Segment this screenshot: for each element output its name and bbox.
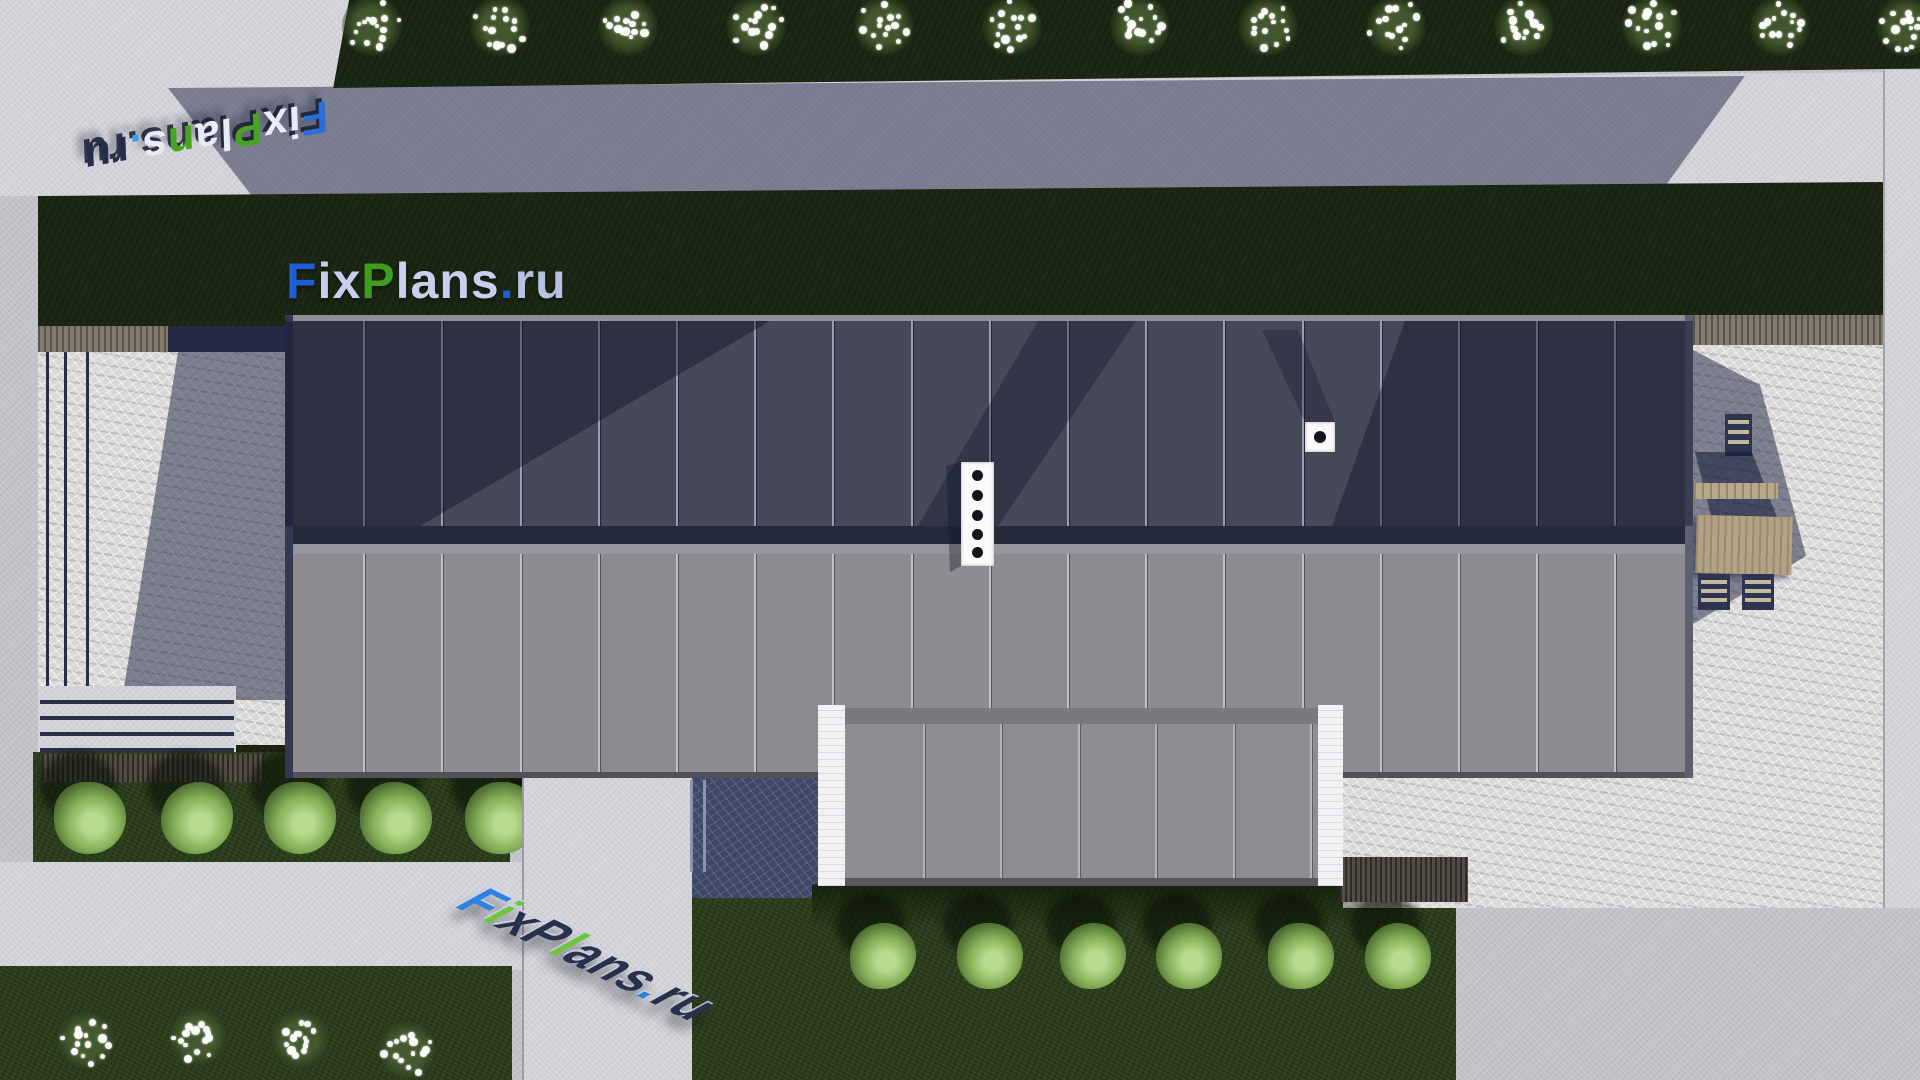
flower-cluster: [168, 1007, 228, 1067]
flower-dot: [380, 27, 386, 33]
patio-chair-top: [1725, 414, 1752, 456]
bush: [1268, 923, 1334, 989]
flower-dot: [1905, 16, 1914, 25]
flower-dot: [1650, 0, 1657, 7]
roof-panel-seam: [441, 321, 444, 526]
garage-panel-seam: [923, 724, 926, 878]
watermark-letter: l: [396, 252, 411, 310]
flower-dot: [631, 29, 637, 35]
vent-hole: [972, 470, 983, 481]
flower-dot: [1413, 13, 1420, 20]
flower-dot: [1776, 1, 1782, 7]
site-plan-render: FixPlans.ru FixPlans.ru FixPlans.ru: [0, 0, 1920, 1080]
watermark-letter: n: [166, 113, 195, 168]
flower-dot: [1655, 22, 1663, 30]
flower-dot: [1127, 28, 1132, 33]
vent-hole: [972, 547, 983, 558]
flower-dot: [84, 1033, 89, 1038]
flower-dot: [765, 31, 773, 39]
patio-chair-bottom-left: [1698, 574, 1730, 610]
flower-dot: [1016, 35, 1023, 42]
flower-dot: [877, 23, 882, 28]
flower-dot: [182, 1030, 190, 1038]
flower-dot: [1643, 42, 1651, 50]
flower-dot: [629, 21, 636, 28]
roof-panel-seam: [1067, 321, 1070, 526]
roof-panel-seam: [676, 321, 679, 526]
watermark-letter: r: [110, 125, 130, 179]
watermark-letter: u: [535, 252, 567, 310]
flower-dot: [1909, 26, 1913, 30]
flower-dot: [754, 11, 762, 19]
garage-roof-bottom-edge: [845, 878, 1318, 886]
watermark-letter: P: [361, 252, 395, 310]
roof-panel-seam: [1614, 554, 1617, 772]
watermark-letter: u: [83, 128, 112, 183]
watermark-letter: .: [500, 252, 515, 310]
watermark-letter: i: [318, 252, 333, 310]
garage-roof: [845, 724, 1318, 878]
roof-panel-seam: [1223, 321, 1226, 526]
watermark-letter: a: [411, 252, 440, 310]
watermark-letter: r: [515, 252, 535, 310]
flower-dot: [88, 1061, 94, 1067]
flower-dot: [1788, 33, 1793, 38]
flower-dot: [1262, 28, 1268, 34]
flower-dot: [1001, 35, 1010, 44]
flower-dot: [400, 1035, 407, 1042]
flower-dot: [1776, 31, 1783, 38]
watermark-letter: x: [262, 97, 289, 152]
vent-hole: [972, 529, 983, 540]
garage-panel-seam: [1000, 724, 1003, 878]
flower-dot: [60, 1036, 64, 1040]
pergola-beam: [46, 352, 49, 742]
flower-dot: [376, 43, 384, 51]
roof-panel-seam: [598, 321, 601, 526]
flower-dot: [761, 4, 768, 11]
flower-dot: [1148, 4, 1153, 9]
roof-panel-seam: [441, 554, 444, 772]
flower-dot: [375, 24, 379, 28]
flower-dot: [191, 1026, 200, 1035]
flower-dot: [779, 17, 784, 22]
flower-dot: [631, 11, 639, 19]
flower-dot: [303, 1036, 307, 1040]
flower-dot: [287, 1046, 296, 1055]
watermark-letter: a: [194, 109, 221, 164]
flower-dot: [1914, 24, 1920, 31]
flower-dot: [415, 1069, 422, 1076]
roof-right-edge: [1685, 315, 1693, 778]
watermark-letter: x: [332, 252, 361, 310]
vent-hole: [972, 490, 983, 501]
flower-dot: [1671, 10, 1677, 16]
flower-dot: [1797, 19, 1805, 27]
bush: [264, 782, 336, 854]
roof-panel-seam: [363, 554, 366, 772]
bush: [1156, 923, 1222, 989]
flower-cluster: [270, 1009, 330, 1069]
side-court-shadowed: [692, 778, 818, 898]
flower-dot: [1402, 37, 1408, 43]
flower-dot: [1883, 38, 1889, 44]
roof-panel-seam: [520, 321, 523, 526]
step-line: [40, 700, 234, 704]
left-patio-wall: [38, 326, 168, 352]
roof-panel-seam: [1145, 321, 1148, 526]
flower-dot: [1790, 20, 1794, 24]
flower-dot: [1518, 1, 1523, 6]
step-line: [40, 716, 234, 720]
roof-panel-seam: [911, 321, 914, 526]
flower-dot: [1891, 25, 1900, 34]
flower-dot: [885, 25, 891, 31]
watermark-letter: s: [141, 118, 168, 173]
flower-dot: [98, 1034, 107, 1043]
flower-dot: [1510, 25, 1514, 29]
flower-dot: [1890, 11, 1896, 17]
flower-dot: [1895, 46, 1901, 52]
flower-dot: [511, 26, 517, 32]
watermark-letter: F: [286, 252, 318, 310]
flower-dot: [362, 20, 367, 25]
roof-panel-seam: [1536, 554, 1539, 772]
roof-panel-seam: [520, 554, 523, 772]
roof-vent-strip: [961, 462, 994, 566]
flower-dot: [994, 42, 1000, 48]
roof-panel-seam: [1380, 321, 1383, 526]
flower-dot: [998, 10, 1005, 17]
side-court-step-line: [690, 780, 693, 872]
flower-dot: [207, 1053, 211, 1057]
bush: [54, 782, 126, 854]
flower-dot: [753, 28, 760, 35]
flower-dot: [488, 27, 495, 34]
bottom-right-pavement: [1456, 908, 1920, 1080]
flower-dot: [493, 7, 497, 11]
flower-dot: [1534, 33, 1540, 39]
flower-dot: [614, 16, 620, 22]
flower-dot: [1252, 26, 1257, 31]
flower-dot: [311, 1028, 316, 1033]
flower-dot: [519, 36, 526, 43]
flower-dot: [1284, 28, 1289, 33]
bush: [1365, 923, 1431, 989]
flower-dot: [768, 23, 776, 31]
watermark-letter: n: [439, 252, 471, 310]
flower-dot: [1274, 42, 1279, 47]
flower-dot: [1501, 37, 1506, 42]
garage-panel-seam: [1310, 724, 1313, 878]
roof-panel-seam: [676, 554, 679, 772]
flower-dot: [205, 1030, 211, 1036]
flower-dot: [1124, 0, 1132, 8]
flower-dot: [990, 17, 994, 21]
garage-panel-seam: [1233, 724, 1236, 878]
flower-dot: [387, 1041, 393, 1047]
garage-east-wall: [1318, 705, 1343, 886]
watermark-letter: .: [128, 123, 143, 176]
roof-panel-seam: [598, 554, 601, 772]
flower-dot: [512, 18, 518, 24]
flower-dot: [1797, 27, 1802, 32]
flower-dot: [620, 30, 625, 35]
flower-dot: [1628, 6, 1636, 14]
flower-dot: [394, 1039, 399, 1044]
garage-roof-top-band: [845, 708, 1318, 724]
flower-dot: [1529, 17, 1534, 22]
flower-dot: [626, 19, 630, 23]
roof-panel-seam: [1614, 321, 1617, 526]
watermark-letter: F: [300, 90, 329, 145]
flower-dot: [304, 1021, 310, 1027]
flower-dot: [887, 14, 894, 21]
watermark-letter: s: [471, 252, 500, 310]
flower-cluster: [56, 1010, 116, 1070]
pergola-beam: [64, 352, 67, 742]
flower-dot: [1790, 13, 1795, 18]
garage-west-wall: [818, 705, 845, 886]
garage-panel-seam: [1078, 724, 1081, 878]
patio-bench: [1694, 483, 1778, 499]
flower-dot: [1139, 17, 1143, 21]
flower-dot: [75, 1041, 80, 1046]
watermark-letter: i: [287, 95, 302, 148]
side-court-step-line2: [703, 780, 706, 872]
patio-chair-bottom-right: [1742, 574, 1774, 610]
watermark-letter: l: [219, 107, 234, 160]
roof-panel-seam: [832, 321, 835, 526]
flower-dot: [1507, 9, 1513, 15]
flower-dot: [1879, 18, 1885, 24]
roof-panel-seam: [1380, 554, 1383, 772]
east-fence: [1693, 315, 1883, 345]
bush: [957, 923, 1023, 989]
roof-panel-seam: [1458, 321, 1461, 526]
flower-dot: [1513, 32, 1521, 40]
flower-dot: [996, 32, 1000, 36]
chimney: [1305, 422, 1335, 452]
flower-dot: [1764, 18, 1772, 26]
flower-dot: [1904, 47, 1909, 52]
flower-dot: [1636, 26, 1641, 31]
flower-dot: [1007, 0, 1012, 4]
flower-dot: [881, 1, 888, 8]
watermark-letter: P: [232, 101, 264, 157]
flower-dot: [1367, 30, 1373, 36]
watermark-main: FixPlans.ru: [286, 252, 567, 310]
bush: [360, 782, 432, 854]
roof-left-edge: [285, 315, 293, 778]
flower-dot: [282, 1028, 290, 1036]
pergola-beam: [86, 352, 89, 742]
flower-dot: [409, 1038, 418, 1047]
flower-dot: [1385, 32, 1391, 38]
flower-dot: [1007, 46, 1014, 53]
garage-panel-seam: [1155, 724, 1158, 878]
roof-panel-seam: [1458, 554, 1461, 772]
flower-dot: [1666, 43, 1670, 47]
flower-dot: [350, 40, 355, 45]
flower-dot: [891, 22, 899, 30]
flower-dot: [1509, 16, 1518, 25]
left-steps: [38, 686, 236, 756]
flower-dot: [1155, 30, 1161, 36]
step-line: [40, 732, 234, 736]
flower-dot: [1286, 36, 1291, 41]
flower-dot: [1396, 26, 1402, 32]
flower-dot: [1392, 5, 1399, 12]
south-deck-strip: [1340, 857, 1468, 902]
flower-dot: [1408, 2, 1413, 7]
bush: [161, 782, 233, 854]
flower-dot: [503, 16, 509, 22]
roof-panel-seam: [754, 321, 757, 526]
vent-hole: [972, 510, 983, 521]
flower-dot: [896, 14, 901, 19]
flower-dot: [1522, 36, 1526, 40]
flower-dot: [1149, 38, 1154, 43]
roof-panel-seam: [754, 554, 757, 772]
left-patio-wall-shadowed: [168, 326, 285, 352]
flower-dot: [1625, 19, 1633, 27]
roof-panel-seam: [363, 321, 366, 526]
flower-dot: [483, 26, 488, 31]
roof-panel-seam: [1536, 321, 1539, 526]
flower-dot: [877, 17, 883, 23]
flower-dot: [411, 1051, 415, 1055]
flower-dot: [1382, 16, 1389, 23]
patio-table: [1695, 515, 1792, 575]
flower-dot: [1376, 18, 1382, 24]
